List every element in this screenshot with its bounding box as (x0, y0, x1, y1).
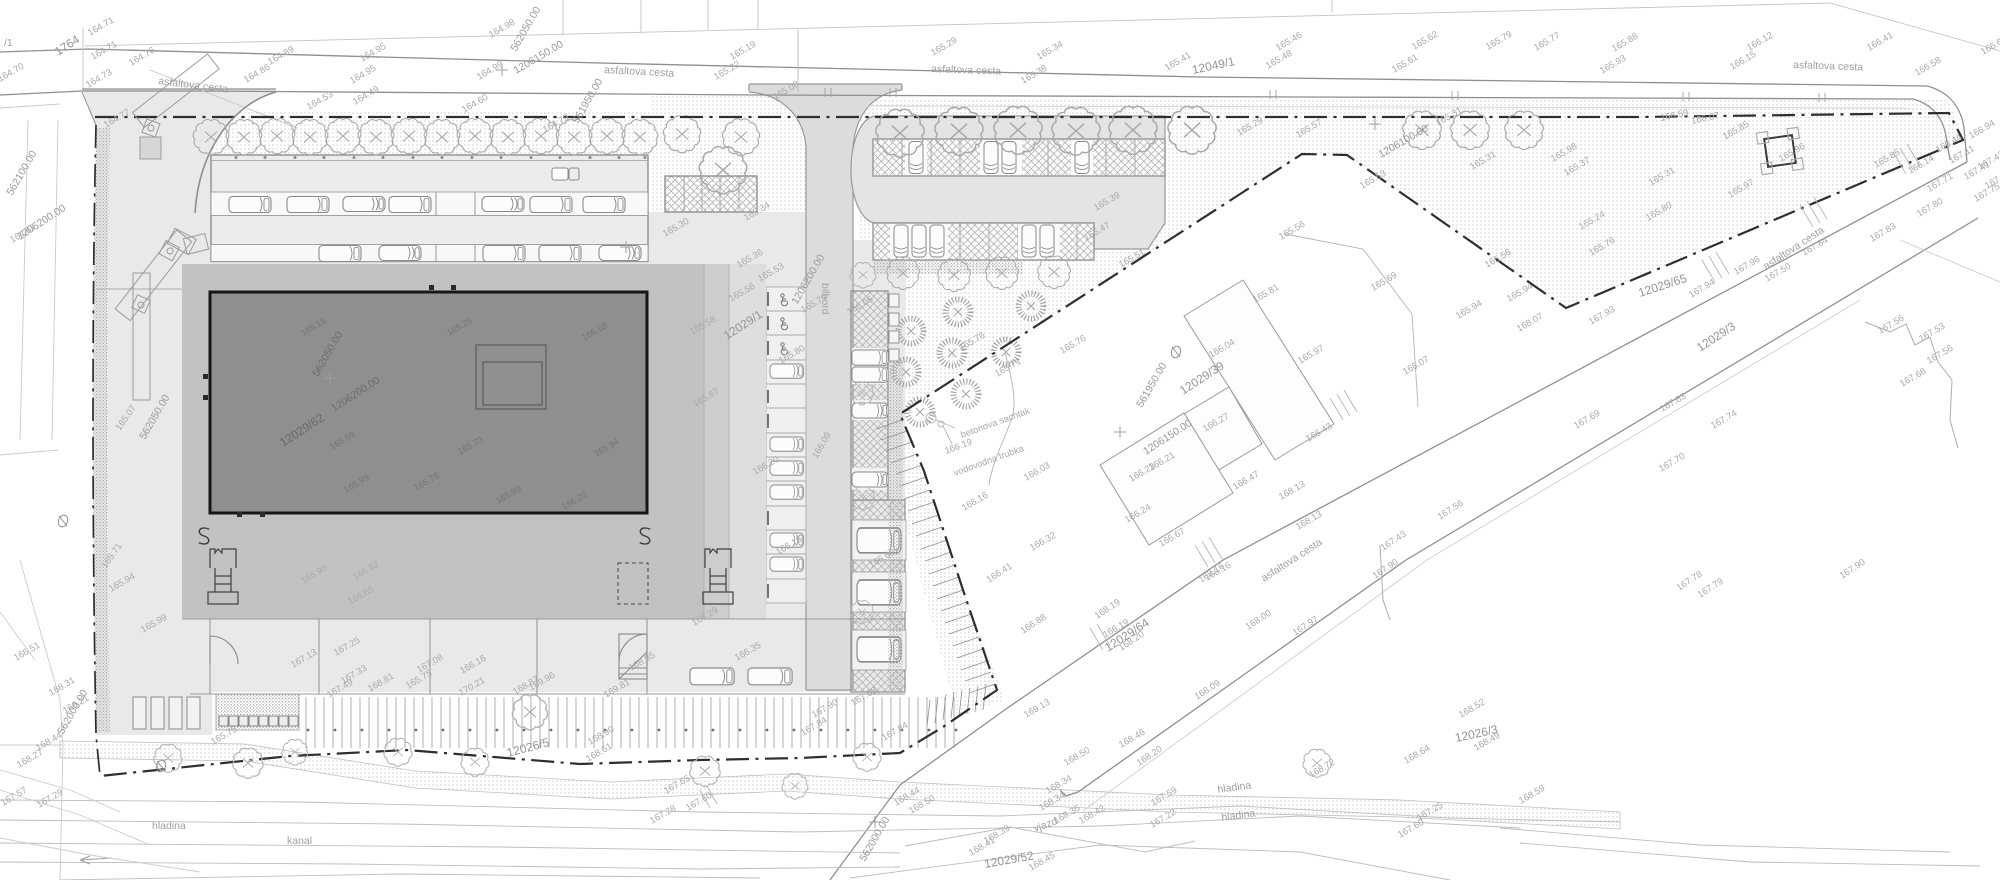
svg-text:/1: /1 (4, 37, 13, 49)
svg-text:kanal: kanal (287, 835, 312, 847)
svg-text:asfaltova cesta: asfaltova cesta (931, 63, 1002, 77)
svg-text:asfaltova cesta: asfaltova cesta (1793, 59, 1864, 73)
svg-text:hladina: hladina (152, 820, 186, 832)
